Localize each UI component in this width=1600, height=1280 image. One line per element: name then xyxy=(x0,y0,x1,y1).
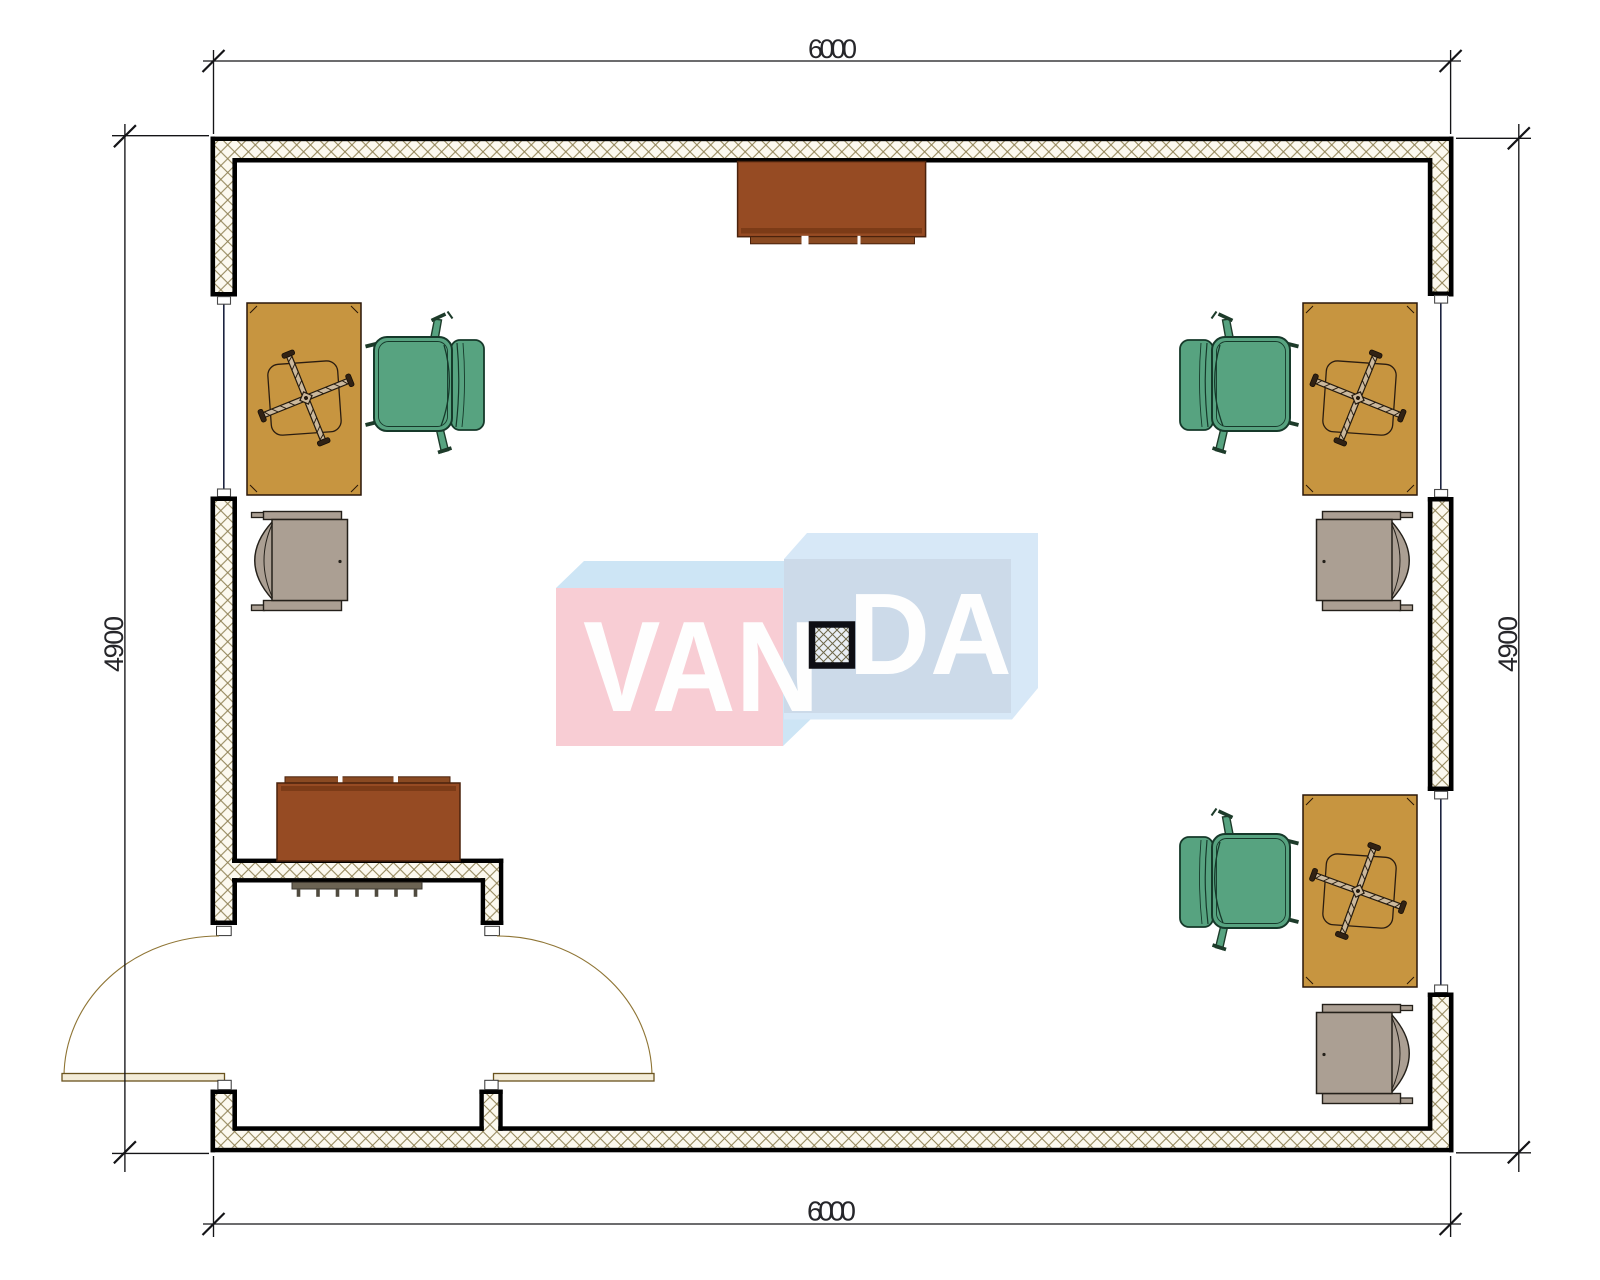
svg-text:6000: 6000 xyxy=(808,34,857,64)
svg-text:4900: 4900 xyxy=(99,616,129,672)
svg-text:VAN: VAN xyxy=(583,595,819,739)
svg-text:4900: 4900 xyxy=(1493,616,1523,672)
svg-text:DA: DA xyxy=(849,570,1012,700)
svg-text:6000: 6000 xyxy=(807,1196,856,1227)
